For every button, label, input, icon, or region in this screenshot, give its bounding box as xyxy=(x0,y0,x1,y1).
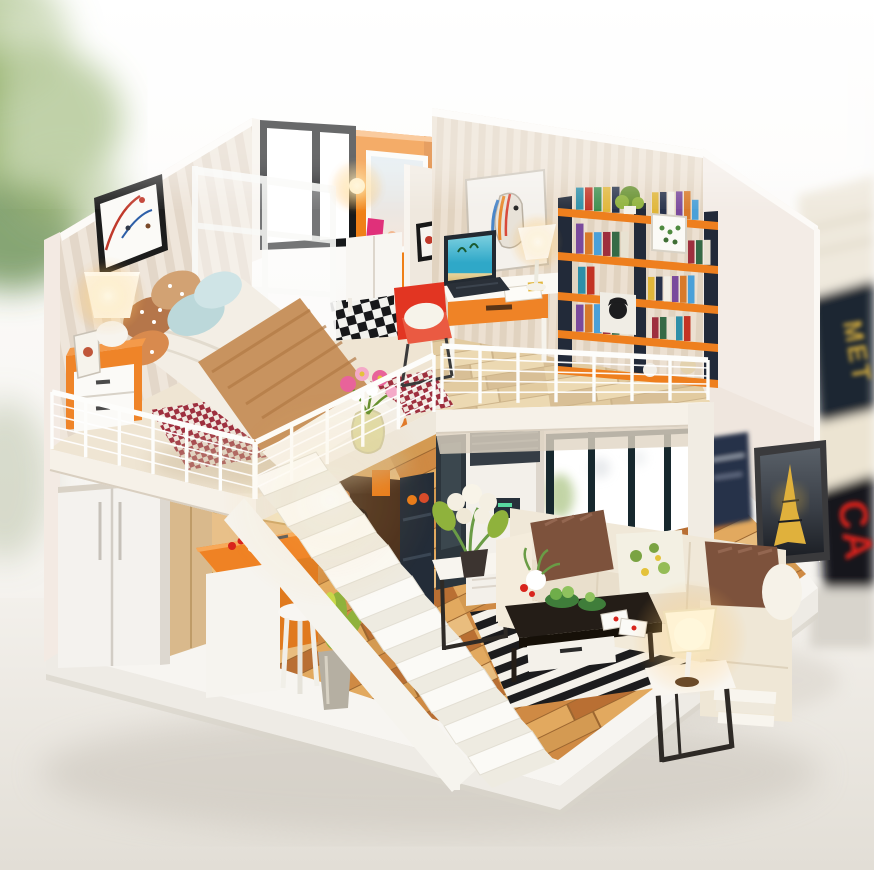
book-spine xyxy=(576,224,584,254)
book-spine xyxy=(692,200,699,220)
floor-lamp xyxy=(632,580,748,696)
house xyxy=(44,108,830,816)
scene-svg: MET CA xyxy=(0,0,874,870)
book-spine xyxy=(656,277,663,301)
book-spine xyxy=(684,316,691,341)
book-spine xyxy=(603,187,611,212)
blanket-stack xyxy=(714,688,777,727)
book-spine xyxy=(594,187,602,211)
book-spine xyxy=(587,267,595,295)
top-haze xyxy=(0,0,874,190)
book-spine xyxy=(652,317,659,338)
fridge xyxy=(58,478,170,668)
book-spine xyxy=(594,232,602,255)
book-spine xyxy=(652,192,659,216)
book-spine xyxy=(576,305,584,332)
laptop-screen xyxy=(448,235,492,281)
book-spine xyxy=(676,316,683,340)
book-spine xyxy=(576,188,584,210)
book-spine xyxy=(612,232,620,257)
book-spine xyxy=(676,191,683,218)
book-spine xyxy=(680,276,687,303)
book-spine xyxy=(585,304,593,332)
stair-leg xyxy=(452,764,460,790)
book-spine xyxy=(648,277,655,300)
book-spine xyxy=(668,317,675,340)
book-spine xyxy=(688,275,695,303)
book-spine xyxy=(684,191,691,219)
book-spine xyxy=(668,192,675,218)
book-spine xyxy=(704,240,711,265)
book-spine xyxy=(603,232,611,256)
book-spine xyxy=(660,192,667,217)
book-spine xyxy=(664,276,671,301)
book-spine xyxy=(578,267,586,294)
dollhouse-photo: Photograph of a miniature DIY dollhouse:… xyxy=(0,0,874,870)
cross-stitch-frame xyxy=(652,214,686,253)
book-spine xyxy=(688,240,695,263)
book-spine xyxy=(660,317,667,339)
book-spine xyxy=(696,240,703,264)
book-spine xyxy=(621,232,629,258)
book-spine xyxy=(585,232,593,254)
book-spine xyxy=(585,187,593,210)
bouquet-pot xyxy=(460,549,488,578)
che-poster xyxy=(600,292,636,335)
book-spine xyxy=(672,276,679,302)
